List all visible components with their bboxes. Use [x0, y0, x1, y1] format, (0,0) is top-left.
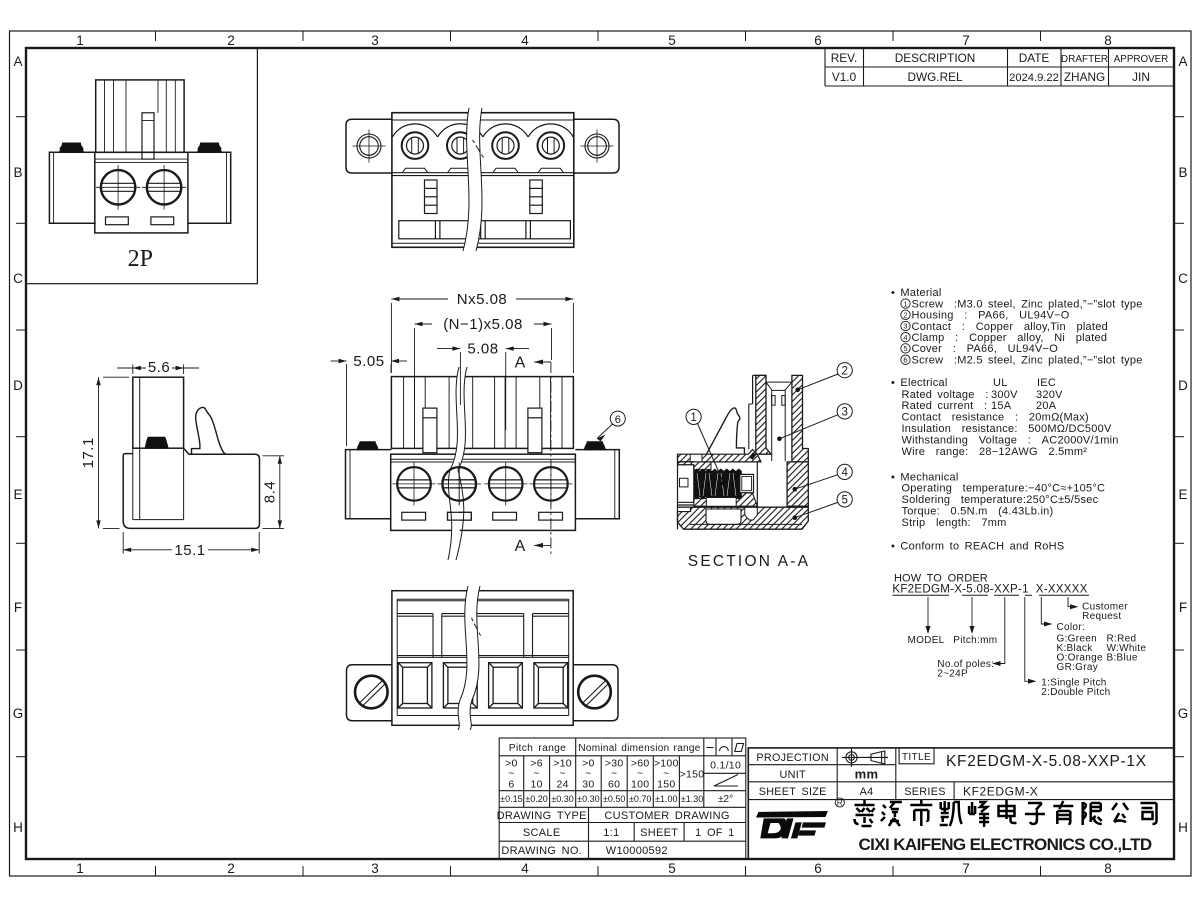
svg-text:KF2EDGM-X-5.08-XXP-1 X-XXXXX: KF2EDGM-X-5.08-XXP-1 X-XXXXX [892, 584, 1087, 596]
svg-text:W10000592: W10000592 [606, 845, 668, 857]
svg-text:UNIT: UNIT [780, 769, 806, 781]
svg-text:4: 4 [903, 333, 907, 342]
svg-text:Torque: 0.5N.m (4.43Lb.in): Torque: 0.5N.m (4.43Lb.in) [902, 505, 1054, 517]
svg-text:CUSTOMER DRAWING: CUSTOMER DRAWING [604, 810, 729, 822]
svg-text:ZHANG: ZHANG [1064, 70, 1105, 84]
svg-text:2: 2 [841, 365, 847, 377]
svg-text:5: 5 [903, 344, 907, 353]
svg-text:Cover : PA66, UL94V−O: Cover : PA66, UL94V−O [912, 343, 1059, 355]
svg-text:Strip length: 7mm: Strip length: 7mm [902, 517, 1007, 529]
svg-text:1 OF 1: 1 OF 1 [695, 827, 734, 839]
svg-text:±0.15: ±0.15 [500, 794, 522, 804]
svg-text:SHEET SIZE: SHEET SIZE [759, 786, 827, 798]
svg-text:1: 1 [76, 861, 84, 876]
svg-text:(N−1)x5.08: (N−1)x5.08 [443, 316, 523, 333]
svg-text:2024.9.22: 2024.9.22 [1009, 72, 1059, 84]
svg-text:±0.30: ±0.30 [551, 794, 573, 804]
svg-text:3: 3 [371, 33, 379, 48]
svg-text:DESCRIPTION: DESCRIPTION [895, 51, 976, 65]
svg-text:2:Double Pitch: 2:Double Pitch [1041, 687, 1110, 698]
svg-text:20A: 20A [1036, 400, 1057, 412]
svg-text:A: A [515, 355, 526, 372]
svg-text:REV.: REV. [831, 51, 857, 65]
svg-text:Housing : PA66, UL94V−O: Housing : PA66, UL94V−O [912, 310, 1070, 322]
svg-text:±0.20: ±0.20 [525, 794, 547, 804]
svg-text:Request: Request [1082, 611, 1121, 622]
svg-text:100: 100 [631, 779, 649, 791]
svg-text:±0.50: ±0.50 [603, 794, 625, 804]
svg-text:mm: mm [855, 766, 879, 781]
svg-text:4: 4 [521, 33, 529, 48]
svg-text:3: 3 [841, 407, 847, 419]
svg-text:150: 150 [657, 779, 675, 791]
svg-text:F: F [1179, 600, 1187, 615]
svg-text:H: H [13, 820, 23, 835]
svg-text:4: 4 [521, 861, 529, 876]
svg-text:8.4: 8.4 [262, 481, 279, 503]
svg-text:Screw :M3.0 steel, Zinc plate: Screw :M3.0 steel, Zinc plated,”−”slot t… [912, 298, 1143, 310]
svg-text:30: 30 [582, 779, 594, 791]
svg-text:±0.70: ±0.70 [629, 794, 651, 804]
svg-text:Pitch:mm: Pitch:mm [953, 635, 997, 646]
svg-text:>150: >150 [680, 769, 705, 781]
svg-text:10: 10 [530, 779, 542, 791]
svg-text:Color:: Color: [1057, 622, 1085, 633]
svg-text:3: 3 [371, 861, 379, 876]
svg-text:2: 2 [227, 861, 235, 876]
svg-text:2: 2 [227, 33, 235, 48]
svg-text:6: 6 [814, 861, 822, 876]
svg-text:B: B [13, 165, 22, 180]
svg-text:DRAWING TYPE: DRAWING TYPE [497, 810, 587, 822]
svg-text:DATE: DATE [1019, 51, 1050, 65]
svg-text:DRAWING NO.: DRAWING NO. [501, 845, 582, 857]
svg-text:15.1: 15.1 [174, 542, 205, 559]
svg-text:6: 6 [814, 33, 822, 48]
svg-text:IEC: IEC [1037, 377, 1056, 389]
svg-text:±1.30: ±1.30 [681, 794, 703, 804]
svg-text:15A: 15A [991, 400, 1012, 412]
svg-text:UL: UL [993, 377, 1008, 389]
svg-text:24: 24 [556, 779, 568, 791]
svg-text:JIN: JIN [1132, 70, 1150, 84]
svg-text:SECTION A-A: SECTION A-A [688, 553, 810, 570]
svg-text:Insulation resistance: 500MΩ: Insulation resistance: 500MΩ/DC500V [902, 423, 1113, 435]
svg-text:HOW TO ORDER: HOW TO ORDER [894, 573, 988, 585]
svg-text:Pitch range: Pitch range [509, 743, 566, 754]
svg-text:3: 3 [903, 322, 907, 331]
svg-text:C: C [13, 271, 23, 286]
svg-text:SCALE: SCALE [523, 827, 561, 839]
svg-text:F: F [14, 600, 22, 615]
svg-text:Screw :M2.5 steel, Zinc plate: Screw :M2.5 steel, Zinc plated,”−”slot t… [912, 355, 1143, 367]
svg-text:TITLE: TITLE [902, 752, 931, 763]
svg-text:6: 6 [615, 414, 621, 426]
svg-text:1:1: 1:1 [603, 827, 619, 839]
svg-text:Soldering temperature:250°C±5: Soldering temperature:250°C±5/5sec [902, 494, 1099, 506]
svg-text:Rated current :: Rated current : [902, 400, 988, 412]
svg-text:5.08: 5.08 [467, 341, 498, 358]
svg-text:1: 1 [903, 299, 907, 308]
svg-text:±0.30: ±0.30 [577, 794, 599, 804]
svg-text:D: D [1178, 378, 1188, 393]
svg-text:KF2EDGM-X: KF2EDGM-X [963, 785, 1038, 799]
svg-text:D: D [13, 378, 23, 393]
svg-text:Withstanding Voltage : AC20: Withstanding Voltage : AC2000V/1min [902, 434, 1119, 446]
svg-text:8: 8 [1104, 861, 1112, 876]
svg-text:DRAFTER: DRAFTER [1061, 54, 1108, 65]
svg-text:• Electrical: • Electrical [891, 377, 948, 389]
svg-text:7: 7 [962, 33, 970, 48]
svg-text:GR:Gray: GR:Gray [1057, 662, 1099, 673]
svg-text:0.1/10: 0.1/10 [710, 760, 741, 772]
svg-text:60: 60 [608, 779, 620, 791]
svg-text:PROJECTION: PROJECTION [756, 752, 829, 764]
svg-text:Contact : Copper alloy,Tin: Contact : Copper alloy,Tin plated [912, 321, 1108, 333]
svg-text:5: 5 [668, 861, 676, 876]
svg-text:Wire range: 28−12AWG 2.5mm²: Wire range: 28−12AWG 2.5mm² [902, 446, 1088, 458]
svg-text:• Material: • Material [891, 287, 942, 299]
svg-text:2P: 2P [128, 246, 153, 272]
svg-text:A4: A4 [860, 786, 874, 798]
svg-text:E: E [1178, 487, 1187, 502]
svg-text:5: 5 [668, 33, 676, 48]
svg-text:4: 4 [841, 467, 848, 479]
svg-text:±1.00: ±1.00 [655, 794, 677, 804]
svg-text:2~24P: 2~24P [937, 669, 968, 680]
svg-text:DWG.REL: DWG.REL [907, 70, 962, 84]
svg-text:H: H [1178, 820, 1188, 835]
svg-text:Rated voltage :: Rated voltage : [902, 389, 989, 401]
svg-text:8: 8 [1104, 33, 1112, 48]
svg-text:SERIES: SERIES [904, 786, 945, 798]
svg-text:C: C [1178, 271, 1188, 286]
svg-text:G: G [1178, 706, 1189, 721]
svg-text:Nominal dimension range: Nominal dimension range [578, 743, 700, 754]
svg-text:E: E [13, 487, 22, 502]
svg-text:320V: 320V [1036, 389, 1063, 401]
svg-text:300V: 300V [991, 389, 1018, 401]
svg-text:Operating temperature:−40°C≈+: Operating temperature:−40°C≈+105°C [902, 483, 1106, 495]
svg-text:A: A [13, 54, 22, 69]
svg-text:• Conform to REACH and RoHS: • Conform to REACH and RoHS [891, 541, 1064, 553]
svg-text:B:Blue: B:Blue [1107, 652, 1138, 663]
svg-text:1: 1 [690, 412, 696, 424]
svg-text:MODEL: MODEL [907, 635, 944, 646]
svg-text:A: A [1178, 54, 1187, 69]
svg-text:17.1: 17.1 [80, 437, 97, 468]
svg-text:APPROVER: APPROVER [1114, 54, 1168, 65]
svg-text:5.6: 5.6 [148, 359, 170, 376]
svg-text:7: 7 [962, 861, 970, 876]
svg-text:1: 1 [76, 33, 84, 48]
svg-text:R: R [837, 799, 843, 808]
svg-text:SHEET: SHEET [640, 827, 678, 839]
svg-text:A: A [515, 538, 526, 555]
svg-text:Nx5.08: Nx5.08 [457, 291, 508, 308]
svg-text:G: G [13, 706, 24, 721]
svg-text:2: 2 [903, 311, 907, 320]
svg-text:Contact resistance : 20mΩ(M: Contact resistance : 20mΩ(Max) [902, 412, 1089, 424]
svg-text:CIXI KAIFENG ELECTRONICS CO.,L: CIXI KAIFENG ELECTRONICS CO.,LTD [858, 835, 1151, 854]
svg-text:6: 6 [903, 355, 907, 364]
svg-text:V1.0: V1.0 [832, 70, 857, 84]
svg-text:Clamp : Copper alloy, Ni: Clamp : Copper alloy, Ni plated [912, 332, 1108, 344]
svg-text:5: 5 [841, 495, 847, 507]
svg-text:5.05: 5.05 [353, 353, 384, 370]
svg-text:±2°: ±2° [718, 794, 733, 805]
svg-text:6: 6 [508, 779, 514, 791]
svg-text:• Mechanical: • Mechanical [891, 471, 959, 483]
svg-text:KF2EDGM-X-5.08-XXP-1X: KF2EDGM-X-5.08-XXP-1X [946, 753, 1147, 770]
svg-text:B: B [1178, 165, 1187, 180]
